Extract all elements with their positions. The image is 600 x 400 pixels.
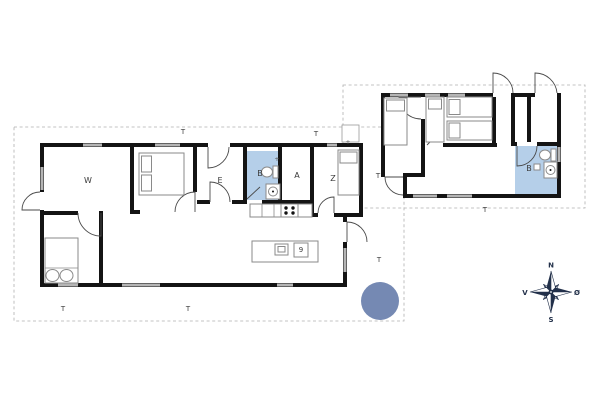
- pillow: [142, 156, 152, 172]
- wall: [513, 93, 535, 97]
- annex-entry-door-arc: [385, 177, 403, 195]
- wall: [193, 147, 197, 192]
- terrace-label: T: [482, 206, 488, 214]
- dishwasher-label: 9: [299, 246, 303, 254]
- wall: [40, 210, 44, 287]
- single-bed: [447, 97, 492, 117]
- wall: [511, 93, 515, 142]
- wall: [232, 200, 247, 204]
- wall: [343, 217, 347, 222]
- shower: [544, 162, 557, 178]
- compass-label-west: V: [522, 289, 528, 297]
- pillow: [46, 270, 59, 282]
- terrace-label: T: [313, 130, 319, 138]
- pillow: [142, 175, 152, 191]
- window: [58, 284, 78, 287]
- wall: [359, 143, 363, 217]
- wall: [44, 211, 78, 215]
- wall: [443, 143, 497, 147]
- single-bed: [447, 121, 492, 140]
- double-bed: [139, 153, 184, 195]
- wall: [243, 147, 247, 200]
- window: [344, 248, 347, 272]
- window: [413, 195, 437, 198]
- floor-plan-canvas: 9 W E B A Z +: [0, 0, 600, 400]
- pillow: [429, 99, 442, 109]
- window: [558, 147, 561, 162]
- sink: [534, 164, 540, 170]
- window: [41, 167, 44, 190]
- window: [327, 144, 337, 147]
- wall: [527, 93, 531, 142]
- compass-label-east: Ø: [574, 289, 580, 297]
- kitchen-island: 9: [252, 241, 318, 262]
- room-label-z: Z: [330, 174, 336, 183]
- window: [122, 284, 160, 287]
- wall: [334, 213, 363, 217]
- wall: [130, 147, 134, 212]
- toilet: [262, 166, 279, 178]
- fixture-marker: +: [345, 138, 350, 146]
- window: [390, 94, 408, 97]
- terrace-label: T: [375, 172, 381, 180]
- single-bed: [384, 98, 407, 145]
- wall: [421, 93, 425, 97]
- wall: [492, 97, 496, 147]
- terrace-label: T: [376, 256, 382, 264]
- pillow: [340, 152, 357, 163]
- west-terrace-door-arc: [22, 192, 40, 210]
- double-bed: [45, 238, 78, 283]
- stove: [281, 204, 298, 217]
- wall: [262, 200, 314, 204]
- east-terrace-door-arc: [347, 222, 367, 242]
- wall: [230, 143, 363, 147]
- terrace-label: T: [185, 305, 191, 313]
- fixture-marker: +: [274, 155, 279, 163]
- hot-tub: [361, 282, 399, 320]
- compass-label-south: S: [548, 316, 553, 324]
- room-label-a: A: [294, 171, 300, 180]
- single-bed: [338, 150, 359, 195]
- wall: [537, 142, 561, 146]
- room-label-b: B: [257, 169, 263, 178]
- pillow: [449, 100, 460, 115]
- annex-terrace-door-arc: [493, 73, 513, 93]
- pillow: [387, 100, 405, 111]
- window: [447, 195, 472, 198]
- window: [155, 144, 180, 147]
- window: [425, 94, 440, 97]
- main-house: 9 W E B A Z +: [22, 143, 367, 287]
- single-bed: [426, 97, 444, 142]
- window: [448, 94, 465, 97]
- wall: [511, 142, 517, 146]
- wall: [40, 143, 208, 147]
- wall: [130, 210, 140, 214]
- room-label-w: W: [84, 176, 92, 185]
- compass-label-north: N: [548, 262, 554, 270]
- window: [83, 144, 102, 147]
- kitchen-counter: [250, 204, 312, 217]
- floor-plan-drawing: 9 W E B A Z +: [0, 0, 600, 400]
- annex-room-door-arc: [535, 73, 557, 93]
- compass-rose: N S V Ø: [522, 262, 580, 325]
- window: [277, 284, 293, 287]
- terrace-label: T: [180, 128, 186, 136]
- shower: [266, 184, 280, 199]
- wall: [40, 283, 347, 287]
- terrace-label: T: [60, 305, 66, 313]
- wall: [421, 119, 425, 177]
- pillow: [449, 123, 460, 138]
- room-label-e: E: [217, 176, 222, 185]
- pillow: [60, 270, 73, 282]
- toilet: [540, 149, 557, 161]
- wall: [197, 200, 210, 204]
- room-label-annex-b: B: [526, 164, 532, 173]
- wall: [381, 173, 385, 177]
